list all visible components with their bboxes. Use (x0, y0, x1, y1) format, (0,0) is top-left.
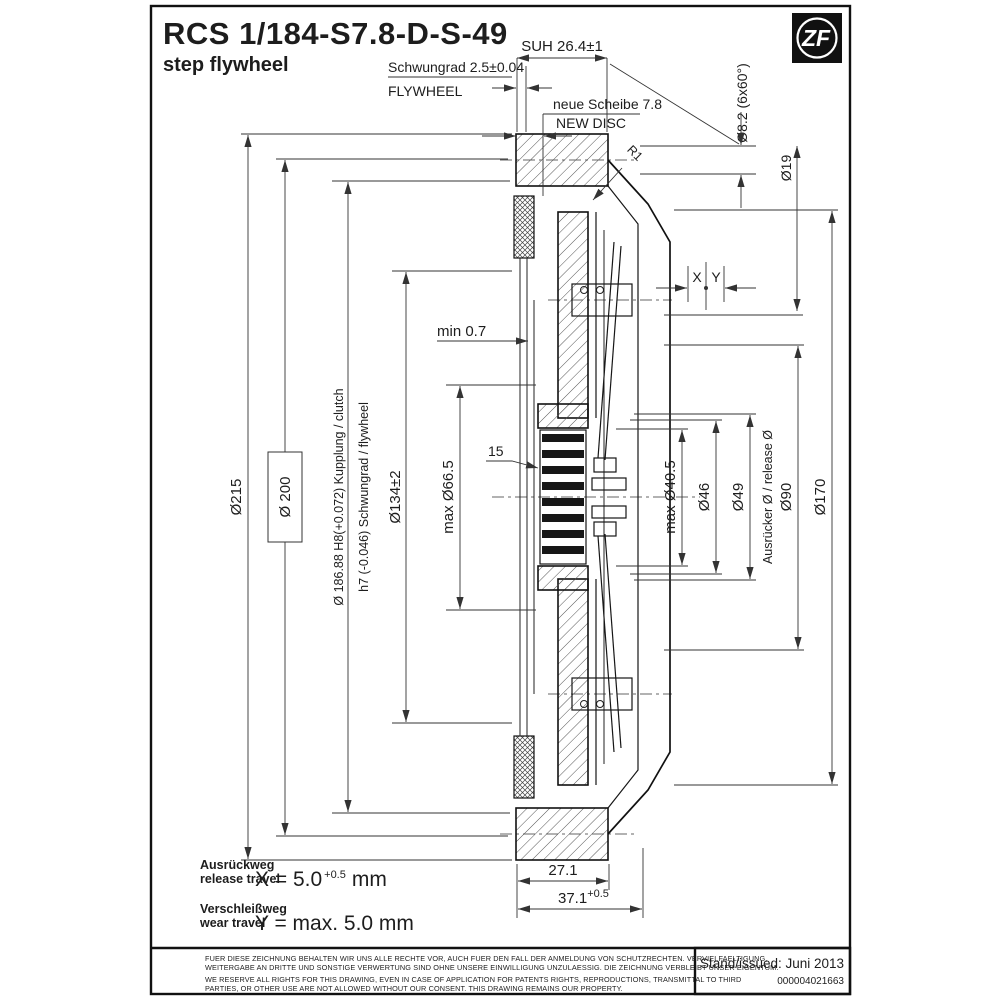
travel-legend: Ausrückweg release travel X = 5.0+0.5mm … (199, 858, 414, 935)
disclaimer-de-2: WEITERGABE AN DRITTE UND SONSTIGE VERWER… (205, 963, 779, 972)
dim-bolt-holes: Ø8.2 (6x60°) (640, 63, 756, 208)
dim-pilot: Ø19 (664, 146, 803, 315)
dim-finger-max-dia-label: max Ø40.5 (662, 460, 679, 533)
dim-cover-bolt-dia-label: Ø170 (812, 479, 829, 516)
dim-outer-dia-label: Ø215 (228, 479, 245, 516)
dim-travel-x-label: X (692, 269, 702, 285)
dim-hub-max-dia-label: max Ø66.5 (440, 460, 457, 533)
dim-bolt-holes-label: Ø8.2 (6x60°) (734, 63, 750, 143)
dim-fit-dia-line2: h7 (-0.046) Schwungrad / flywheel (357, 402, 371, 592)
dim-register-dia-label: Ø 200 (277, 477, 294, 518)
flywheel-ring-bottom (516, 808, 608, 860)
zf-logo: ZF (792, 13, 842, 63)
hub-spline-teeth (542, 434, 584, 554)
dim-disc-dia-label: Ø134±2 (387, 470, 404, 523)
dim-min-clearance: min 0.7 (437, 323, 528, 341)
pressure-plate-bottom (558, 579, 588, 785)
dim-suh: SUH 26.4±1 (517, 38, 739, 144)
dim-new-disc-en: NEW DISC (556, 115, 626, 131)
dim-width-disc-label: 27.1 (548, 862, 577, 879)
dim-min-clearance-label: min 0.7 (437, 323, 486, 340)
flywheel-ring-top (516, 134, 608, 186)
hub-flange-bottom (538, 566, 588, 590)
dim-pilot-label: Ø19 (778, 155, 794, 182)
zf-logo-text: ZF (801, 25, 831, 51)
finger-tip-top (594, 458, 616, 472)
dim-travel-y-label: Y (711, 269, 721, 285)
dim-new-disc-de: neue Scheibe 7.8 (553, 96, 662, 112)
dim-hub-max-dia: max Ø66.5 (440, 385, 536, 610)
dim-spline-length: 15 (486, 443, 538, 468)
finger-tip-bottom (594, 522, 616, 536)
legend-y-equation: Y = max. 5.0 mm (255, 912, 414, 935)
dim-flywheel-step-en: FLYWHEEL (388, 83, 463, 99)
release-contact-bottom (592, 506, 626, 518)
dim-finger-max-dia: max Ø40.5 (616, 429, 688, 566)
drawing-type: step flywheel (163, 54, 289, 76)
dim-width-total-label: 37.1+0.5 (558, 888, 609, 907)
release-contact-top (592, 478, 626, 490)
dim-release-dia-value: Ø49 (730, 483, 747, 511)
disc-facing-bottom (514, 736, 534, 798)
disclaimer-de-1: FUER DIESE ZEICHNUNG BEHALTEN WIR UNS AL… (205, 954, 768, 963)
disc-facing-top (514, 196, 534, 258)
pressure-plate-top (558, 212, 588, 418)
dim-release-dia-label: Ausrücker Ø / release Ø (761, 430, 775, 564)
dim-bearing-contact-dia-label: Ø46 (696, 483, 713, 511)
hub-flange-top (538, 404, 588, 428)
issued-date: Stand/issued: Juni 2013 (700, 956, 844, 971)
dim-spline-length-label: 15 (488, 443, 504, 459)
disclaimer-en-1: WE RESERVE ALL RIGHTS FOR THIS DRAWING, … (205, 975, 741, 984)
dim-suh-label: SUH 26.4±1 (521, 38, 603, 55)
dim-fit-dia-line1: Ø 186.88 H8(+0.072) Kupplung / clutch (332, 388, 346, 605)
dim-flywheel-step-de: Schwungrad 2.5±0.04 (388, 59, 524, 75)
disclaimer-en-2: PARTIES, OR OTHER USE ARE NOT ALLOWED WI… (205, 984, 623, 993)
drawing-code: RCS 1/184-S7.8-D-S-49 (163, 16, 508, 51)
dim-flywheel-step: Schwungrad 2.5±0.04 FLYWHEEL (388, 59, 552, 132)
footer: FUER DIESE ZEICHNUNG BEHALTEN WIR UNS AL… (205, 954, 844, 993)
legend-x-equation: X = 5.0+0.5mm (255, 868, 387, 891)
document-number: 000004021663 (777, 976, 844, 987)
technical-drawing: RCS 1/184-S7.8-D-S-49 step flywheel ZF (0, 0, 1000, 1000)
dim-travel-xy: X Y (656, 262, 756, 310)
dim-fit-dia: Ø 186.88 H8(+0.072) Kupplung / clutch h7… (332, 181, 510, 813)
dim-bolt-circle-dia-label: Ø90 (778, 483, 795, 511)
